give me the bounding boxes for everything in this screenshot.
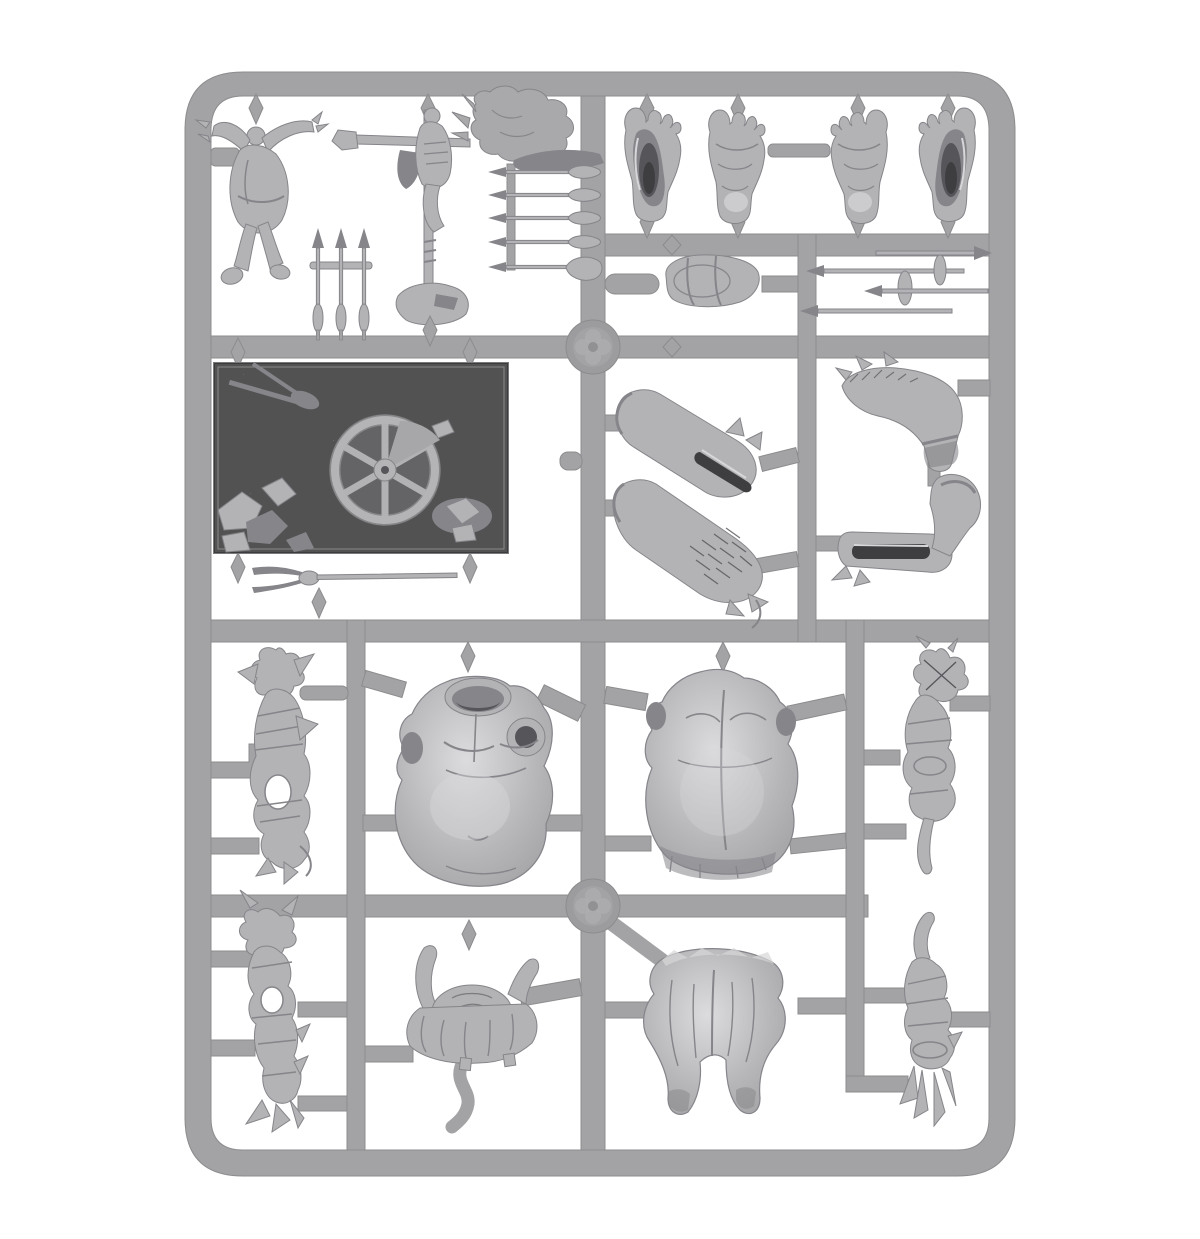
part-giant-foot-top-left — [709, 110, 765, 223]
rail-h4 — [211, 895, 868, 917]
sprue-hub-upper — [566, 320, 620, 374]
part-giant-foot-sole-left — [625, 108, 681, 221]
sprue-frame — [185, 72, 1015, 1176]
part-hanged-figure — [196, 112, 328, 287]
sprue-photo — [0, 0, 1200, 1239]
part-two-prong-fork — [252, 567, 457, 593]
sprue-illustration — [0, 0, 1200, 1239]
part-cape-drape — [407, 946, 539, 1071]
part-arm-lower-right — [832, 474, 981, 586]
part-giant-foot-sole-right — [919, 108, 975, 221]
part-loincloth — [644, 948, 786, 1114]
divider-bottom-right — [846, 620, 864, 1092]
part-arrow-triplet — [310, 228, 372, 340]
part-trophy-standard — [332, 108, 470, 346]
divider-right-top — [798, 234, 816, 642]
part-flattened-figure-relief — [452, 86, 574, 161]
part-scenic-base — [214, 362, 508, 553]
sprue-hub-lower — [566, 879, 620, 933]
part-giant-foot-top-right — [831, 110, 887, 223]
rail-h3 — [211, 620, 989, 642]
divider-bottom-left — [347, 620, 365, 1150]
cartwheel — [329, 414, 441, 526]
part-arm-lower-left — [613, 480, 768, 628]
part-torso-front — [395, 676, 552, 886]
part-arm-upper-right — [836, 352, 962, 471]
part-carcass-bundle-upper-right — [903, 636, 968, 874]
part-vambrace — [666, 255, 759, 307]
part-torso-back — [645, 670, 798, 880]
